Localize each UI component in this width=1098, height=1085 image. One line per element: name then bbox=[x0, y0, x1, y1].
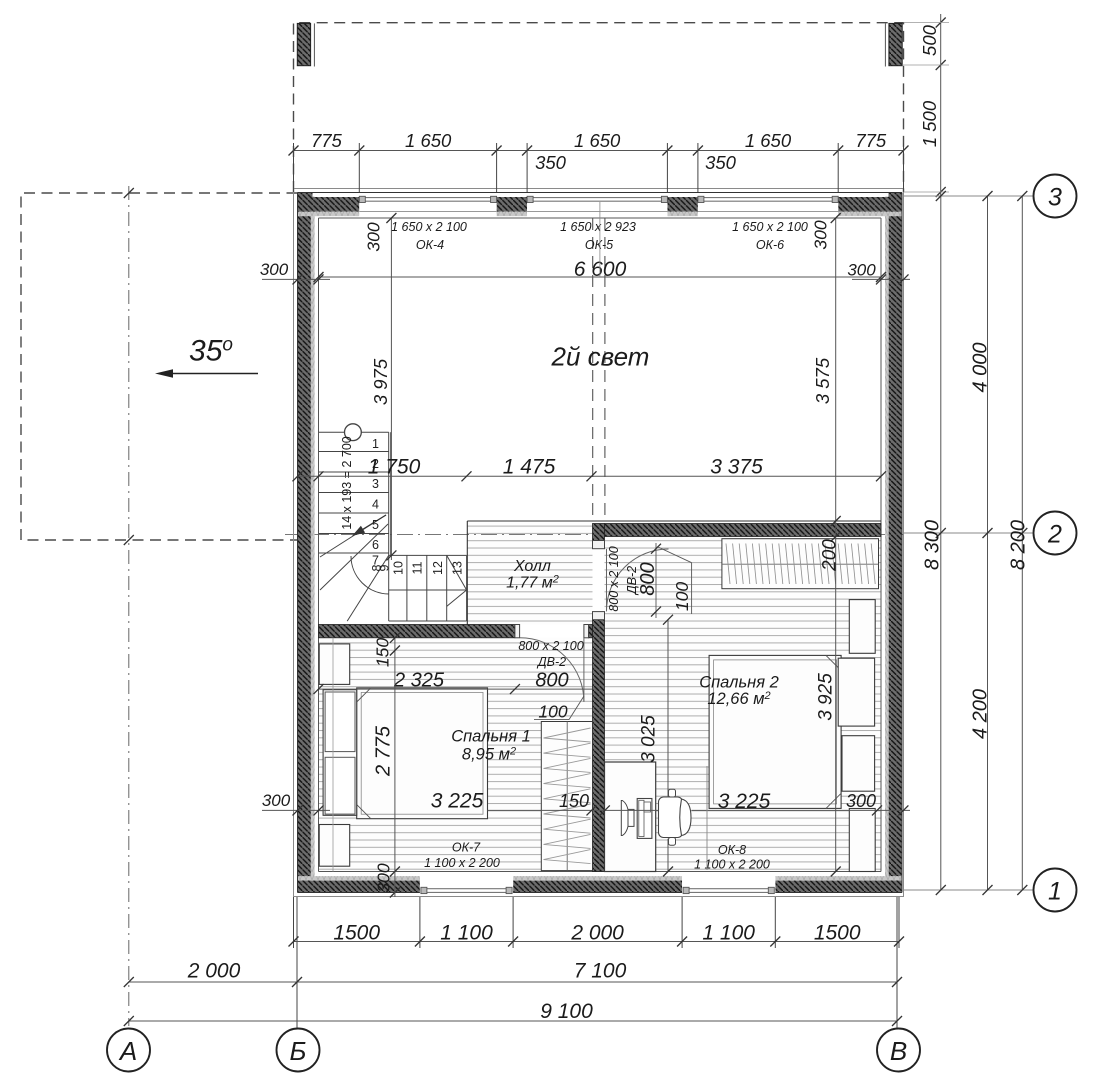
svg-text:800: 800 bbox=[535, 670, 568, 692]
svg-text:ОК-4: ОК-4 bbox=[416, 238, 444, 252]
svg-text:3 225: 3 225 bbox=[431, 790, 484, 813]
svg-text:1 650 x 2 100: 1 650 x 2 100 bbox=[732, 220, 808, 234]
svg-text:1 650: 1 650 bbox=[574, 130, 621, 151]
svg-text:300: 300 bbox=[262, 791, 291, 810]
svg-text:300: 300 bbox=[374, 863, 394, 892]
svg-text:300: 300 bbox=[364, 222, 384, 251]
svg-text:8,95 м2: 8,95 м2 bbox=[462, 745, 516, 763]
svg-text:100: 100 bbox=[672, 582, 692, 611]
svg-text:12: 12 bbox=[431, 561, 445, 575]
svg-text:300: 300 bbox=[811, 220, 831, 249]
svg-text:775: 775 bbox=[311, 130, 343, 151]
svg-text:6: 6 bbox=[372, 538, 379, 552]
svg-text:7 100: 7 100 bbox=[574, 960, 627, 983]
svg-text:ОК-5: ОК-5 bbox=[585, 238, 613, 252]
svg-text:9 100: 9 100 bbox=[540, 1000, 593, 1023]
svg-text:Холл: Холл bbox=[513, 558, 551, 575]
svg-text:1500: 1500 bbox=[333, 922, 380, 945]
svg-text:2й свет: 2й свет bbox=[551, 341, 650, 371]
svg-text:1 475: 1 475 bbox=[503, 456, 556, 479]
svg-text:2 000: 2 000 bbox=[187, 960, 241, 983]
svg-text:350: 350 bbox=[705, 152, 737, 173]
svg-text:А: А bbox=[118, 1036, 137, 1066]
svg-text:1 100 x 2 200: 1 100 x 2 200 bbox=[424, 856, 500, 870]
svg-text:350: 350 bbox=[535, 152, 567, 173]
svg-text:1,77 м2: 1,77 м2 bbox=[506, 574, 559, 592]
svg-text:1 100: 1 100 bbox=[440, 922, 493, 945]
svg-text:ДВ-2: ДВ-2 bbox=[536, 655, 566, 669]
svg-text:1 650 x 2 100: 1 650 x 2 100 bbox=[391, 220, 467, 234]
svg-text:3 925: 3 925 bbox=[815, 673, 836, 721]
svg-text:3 225: 3 225 bbox=[718, 790, 771, 813]
svg-text:2 775: 2 775 bbox=[373, 725, 395, 777]
svg-text:8 300: 8 300 bbox=[922, 520, 944, 570]
svg-text:3 975: 3 975 bbox=[370, 358, 391, 405]
svg-text:5: 5 bbox=[372, 518, 379, 532]
svg-text:В: В bbox=[890, 1036, 907, 1066]
svg-text:3: 3 bbox=[372, 477, 379, 491]
svg-text:3 575: 3 575 bbox=[812, 357, 833, 404]
svg-text:1 650: 1 650 bbox=[745, 130, 792, 151]
svg-text:1 750: 1 750 bbox=[368, 456, 421, 479]
svg-text:4: 4 bbox=[372, 497, 379, 511]
svg-text:1: 1 bbox=[1048, 878, 1062, 906]
svg-text:4 000: 4 000 bbox=[970, 342, 992, 392]
svg-text:2: 2 bbox=[1047, 521, 1062, 549]
svg-text:1 100: 1 100 bbox=[702, 922, 755, 945]
svg-text:300: 300 bbox=[847, 261, 876, 280]
svg-text:800 x 2 100: 800 x 2 100 bbox=[518, 639, 583, 653]
svg-text:1 500: 1 500 bbox=[919, 100, 940, 147]
svg-text:ОК-8: ОК-8 bbox=[718, 843, 746, 857]
svg-text:775: 775 bbox=[855, 130, 887, 151]
svg-text:1 100 x 2 200: 1 100 x 2 200 bbox=[694, 857, 770, 871]
svg-text:9: 9 bbox=[378, 564, 392, 571]
svg-text:3: 3 bbox=[1048, 184, 1062, 212]
svg-text:1 650 x 2 923: 1 650 x 2 923 bbox=[560, 220, 636, 234]
svg-text:3 025: 3 025 bbox=[638, 715, 659, 763]
svg-text:Спальня 2: Спальня 2 bbox=[699, 673, 779, 691]
svg-text:Спальня 1: Спальня 1 bbox=[451, 727, 531, 745]
svg-text:150: 150 bbox=[372, 638, 392, 667]
svg-text:1500: 1500 bbox=[814, 922, 861, 945]
svg-text:2 325: 2 325 bbox=[393, 670, 445, 692]
svg-text:Б: Б bbox=[290, 1036, 307, 1066]
svg-text:3 375: 3 375 bbox=[710, 456, 763, 479]
svg-text:10: 10 bbox=[392, 561, 406, 575]
svg-text:300: 300 bbox=[846, 791, 876, 811]
svg-text:13: 13 bbox=[450, 561, 464, 575]
svg-text:2 000: 2 000 bbox=[570, 922, 624, 945]
svg-text:11: 11 bbox=[411, 561, 425, 574]
svg-text:200: 200 bbox=[819, 539, 840, 572]
svg-text:1: 1 bbox=[372, 437, 379, 451]
svg-text:500: 500 bbox=[919, 24, 940, 56]
svg-text:8 200: 8 200 bbox=[1008, 520, 1030, 570]
svg-text:ОК-7: ОК-7 bbox=[452, 840, 481, 854]
svg-text:800 x 2 100: 800 x 2 100 bbox=[607, 546, 621, 611]
svg-text:1 650: 1 650 bbox=[405, 130, 452, 151]
svg-text:100: 100 bbox=[538, 702, 567, 722]
svg-text:150: 150 bbox=[559, 791, 589, 811]
svg-text:ОК-6: ОК-6 bbox=[756, 238, 784, 252]
svg-text:12,66 м2: 12,66 м2 bbox=[707, 690, 770, 708]
svg-text:4 200: 4 200 bbox=[970, 689, 992, 739]
svg-text:14 x 193 = 2 700: 14 x 193 = 2 700 bbox=[340, 436, 354, 530]
svg-text:300: 300 bbox=[260, 260, 289, 279]
